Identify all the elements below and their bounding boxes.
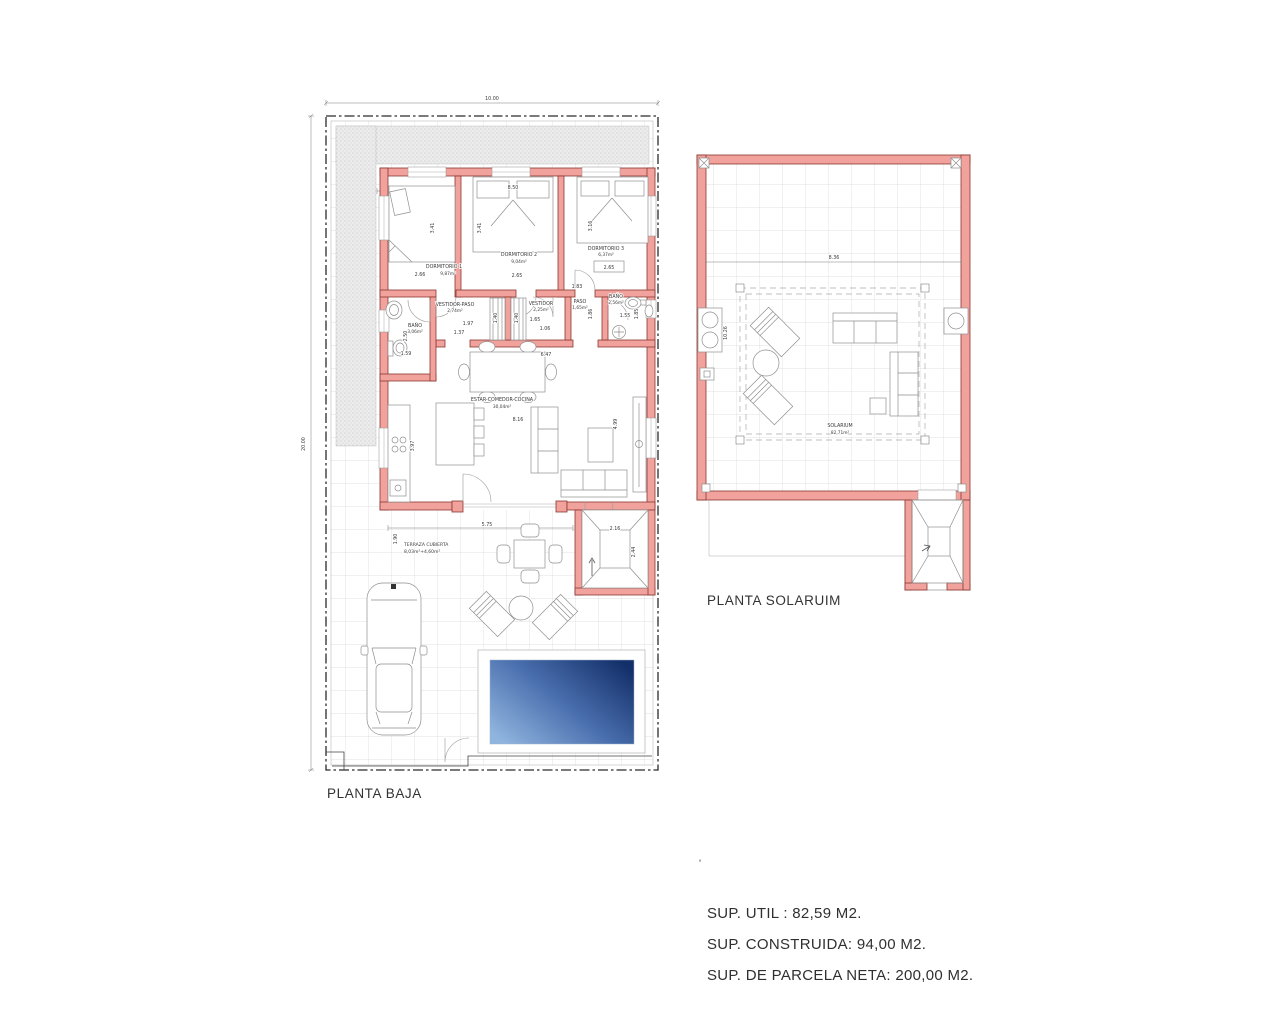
hatch-band-top [336, 126, 649, 164]
room-area: 1,65m² [572, 305, 588, 311]
pergola-post [921, 436, 929, 444]
bidet-icon [645, 305, 653, 317]
dim-text: 1.83 [572, 284, 583, 290]
dim-text: 1.40 [514, 313, 520, 324]
dim-text: 5.75 [482, 522, 493, 528]
dim-text: 2.44 [631, 547, 637, 558]
dim-text: 2.66 [415, 272, 426, 278]
room-area: 9,87m² [440, 271, 456, 277]
dim-text: 8.50 [508, 185, 519, 191]
dim-text: 3.41 [477, 223, 483, 234]
dim-text: 1.40 [493, 313, 499, 324]
bed-double-1 [389, 186, 455, 262]
planta-solarium-plan: 8.36 10.26 SOLARIUM 82,71m² [697, 155, 970, 590]
dim-text: 2.65 [604, 265, 615, 271]
stair-tower [905, 500, 970, 590]
window-icon [408, 167, 446, 177]
dim-text: 2.16 [610, 526, 621, 532]
dim-text: 1.65 [530, 317, 541, 323]
bed-double-3 [577, 177, 648, 243]
wall-corridor-n3 [536, 290, 575, 297]
stair-opening [918, 490, 956, 501]
room-label: BAÑO [609, 293, 623, 300]
summary-line-construida: SUP. CONSTRUIDA: 94,00 M2. [707, 936, 973, 953]
dim-text: 8.36 [829, 255, 840, 261]
blueprint-canvas: 10.00 20.00 8.50 3.41 DORMITORIO 1 9,87m… [0, 0, 1280, 1024]
dim-text: 2.65 [512, 273, 523, 279]
round-table [753, 350, 779, 376]
kitchen-counter [388, 405, 410, 502]
room-label: PASO [574, 299, 587, 305]
pergola-post [921, 284, 929, 292]
room-area: 82,71m² [831, 430, 849, 436]
room-label: BAÑO [408, 322, 422, 329]
window-icon [646, 418, 656, 458]
dim-text: 10.26 [723, 326, 729, 340]
sofa-vertical [890, 352, 918, 416]
room-label: TERRAZA CUBIERTA [403, 542, 449, 548]
wall-south-1 [380, 502, 452, 510]
dim-text: 1.86 [588, 309, 594, 320]
column-icon [702, 484, 710, 492]
room-label: DORMITORIO 2 [501, 252, 537, 258]
room-area: 2,25m² [533, 307, 549, 313]
wall-corridor-s1 [436, 340, 445, 347]
dim-text: 2.50 [403, 331, 409, 342]
dim-text: 1.59 [401, 351, 412, 357]
hatch-band-left [336, 126, 376, 446]
wall-paso-bath [602, 297, 608, 340]
dim-text: 10.00 [485, 96, 499, 102]
room-area: 6,37m² [598, 252, 614, 258]
window-icon [492, 167, 530, 177]
tower-wall-w [905, 500, 912, 590]
summary-line-parcela: SUP. DE PARCELA NETA: 200,00 M2. [707, 967, 973, 984]
window-icon [379, 196, 389, 240]
room-label: DORMITORIO 1 [426, 264, 462, 270]
dim-text: 6.47 [541, 352, 552, 358]
tv-unit [633, 397, 646, 492]
car-top-view [361, 583, 427, 735]
wall-corridor-n2 [456, 290, 516, 297]
parapet-north [697, 155, 970, 164]
column-icon [951, 158, 961, 168]
tower-wall-e [963, 500, 970, 590]
wall-dorm1-dorm2 [455, 176, 461, 297]
floorplan-svg: 10.00 20.00 8.50 3.41 DORMITORIO 1 9,87m… [0, 0, 1280, 1024]
pergola-post [736, 284, 744, 292]
dim-text: 3.97 [410, 441, 416, 452]
dim-text: 1.37 [454, 330, 465, 336]
window-icon [379, 428, 389, 468]
sink-icon [386, 301, 402, 319]
armchair [588, 428, 613, 462]
pillar-south-1 [452, 501, 463, 512]
wall-bath-left-e [430, 297, 436, 381]
room-area: 30,04m² [493, 404, 511, 410]
dim-text: 20.00 [301, 437, 307, 451]
dim-text: 1.97 [463, 321, 474, 327]
surface-summary: SUP. UTIL : 82,59 M2. SUP. CONSTRUIDA: 9… [707, 905, 973, 998]
wall-south-2 [567, 502, 655, 510]
dim-line-height [308, 114, 314, 772]
room-label: SOLARIUM [827, 423, 852, 429]
column-icon [958, 484, 966, 492]
side-table [870, 398, 886, 414]
room-label: DORMITORIO 3 [588, 246, 624, 252]
planta-baja-title: PLANTA BAJA [327, 786, 422, 801]
room-area: 2,56m² [608, 300, 624, 306]
pillar-south-2 [556, 501, 567, 512]
column-icon [699, 158, 709, 168]
planter-box [700, 368, 714, 380]
room-area: 2,74m² [447, 308, 463, 314]
dim-text: 3.16 [588, 221, 594, 232]
wall-stairs-e [648, 510, 655, 595]
sofa-horizontal [561, 470, 627, 497]
wall-vestidor-2 [565, 297, 571, 340]
planta-solarium-title: PLANTA SOLARUIM [707, 593, 841, 608]
room-area: 9,04m² [511, 259, 527, 265]
wall-corridor-s3 [598, 340, 655, 347]
wall-corridor-n1 [380, 290, 436, 297]
dim-text: 3.41 [430, 223, 436, 234]
kitchen-island [436, 403, 484, 465]
room-label: VESTIDOR [529, 301, 554, 307]
wall-stairs-w [575, 510, 582, 595]
shower-icon [613, 326, 626, 339]
sofa-horizontal [833, 313, 897, 343]
dim-text: 1.90 [393, 534, 399, 545]
wall-vestidor-1 [505, 297, 511, 340]
dim-text: 1.06 [540, 326, 551, 332]
dim-text: 8.16 [513, 417, 524, 423]
tower-wall-s1 [905, 583, 927, 590]
room-area: 8,03m²+4,60m² [404, 549, 440, 555]
room-area: 3,06m² [407, 329, 423, 335]
lower-floor-outline [709, 500, 905, 556]
planter-box [698, 308, 722, 352]
sofa-vertical [531, 407, 558, 473]
dim-text: 1.55 [620, 313, 631, 319]
planter-box [944, 308, 968, 334]
dim-text: 1.85 [634, 309, 640, 320]
pergola-post [736, 436, 744, 444]
wall-dorm2-dorm3 [558, 176, 564, 297]
pool [478, 650, 645, 753]
room-label: ESTAR-COMEDOR-COCINA [471, 397, 534, 403]
dim-text: 4.99 [613, 419, 619, 430]
exterior-stairs [582, 510, 648, 588]
wall-stairs-s [575, 588, 655, 595]
window-icon [582, 167, 620, 177]
wall-bath-left-s [380, 374, 436, 381]
planta-baja-plan: 10.00 20.00 8.50 3.41 DORMITORIO 1 9,87m… [301, 96, 660, 772]
round-table [509, 596, 533, 620]
room-label: VESTIDOR-PASO [436, 302, 475, 308]
summary-line-util: SUP. UTIL : 82,59 M2. [707, 905, 973, 922]
stray-tick-mark: ' [699, 858, 701, 870]
wall-corridor-n4 [595, 290, 655, 297]
